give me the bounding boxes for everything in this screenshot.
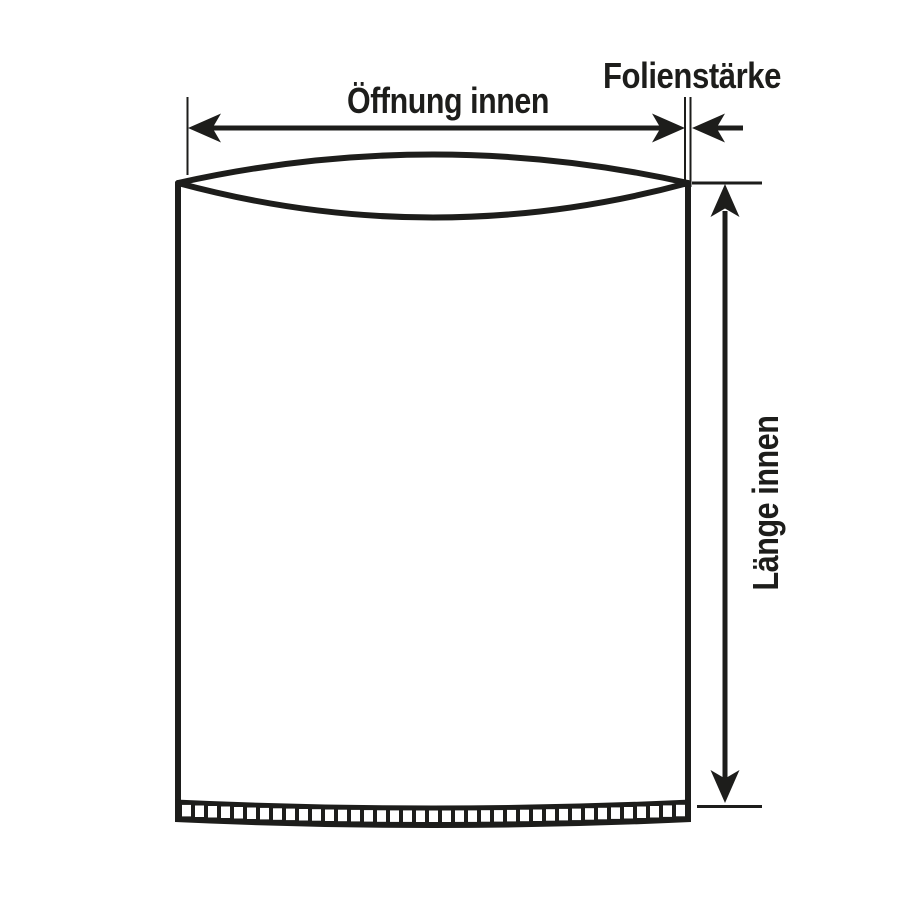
weld-seam-square xyxy=(676,805,685,817)
weld-seam-square xyxy=(338,810,347,822)
weld-seam-square xyxy=(234,807,243,819)
dimension-film-thickness: Folienstärke xyxy=(603,55,781,187)
weld-seam-square xyxy=(546,809,555,821)
weld-seam-square xyxy=(442,811,451,823)
weld-seam-square xyxy=(195,806,204,818)
weld-seam-square xyxy=(364,810,373,822)
weld-seam-square xyxy=(247,808,256,820)
weld-seam-square xyxy=(650,806,659,818)
weld-seam-square xyxy=(429,811,438,823)
weld-seam-square xyxy=(520,810,529,822)
bottom-weld-seam xyxy=(175,800,691,829)
weld-seam-square xyxy=(390,810,399,822)
weld-seam-square xyxy=(455,810,464,822)
weld-seam-square xyxy=(325,810,334,822)
diagram-canvas: Öffnung innen Folienstärke Länge innen xyxy=(0,0,900,900)
inner-length-label: Länge innen xyxy=(745,416,786,591)
bag-opening-upper-arc xyxy=(178,155,688,184)
weld-seam-square xyxy=(481,810,490,822)
weld-seam-square xyxy=(416,811,425,823)
opening-width-label: Öffnung innen xyxy=(347,80,549,121)
dimension-inner-length: Länge innen xyxy=(692,183,786,807)
bag-outline xyxy=(178,155,688,804)
weld-seam-square xyxy=(208,806,217,818)
weld-seam-square xyxy=(533,810,542,822)
weld-seam-square xyxy=(312,809,321,821)
weld-seam-square xyxy=(494,810,503,822)
weld-seam-square xyxy=(286,809,295,821)
weld-seam-square xyxy=(663,805,672,817)
film-thickness-label: Folienstärke xyxy=(603,55,781,96)
bag-opening-lower-arc xyxy=(178,183,688,218)
weld-seam-square xyxy=(351,810,360,822)
weld-seam-square xyxy=(403,810,412,822)
bag-dimension-diagram: Öffnung innen Folienstärke Länge innen xyxy=(0,0,900,900)
weld-seam-square xyxy=(598,808,607,820)
weld-seam-square xyxy=(624,807,633,819)
weld-seam-square xyxy=(585,808,594,820)
weld-seam-square xyxy=(182,805,191,817)
weld-seam-square xyxy=(299,809,308,821)
weld-seam-square xyxy=(221,807,230,819)
weld-seam-square xyxy=(507,810,516,822)
weld-seam-square xyxy=(260,808,269,820)
weld-seam-square xyxy=(377,810,386,822)
weld-seam-square xyxy=(572,809,581,821)
weld-seam-square xyxy=(559,809,568,821)
weld-seam-square xyxy=(273,808,282,820)
weld-seam-square xyxy=(611,807,620,819)
weld-seam-square xyxy=(468,810,477,822)
weld-seam-square xyxy=(637,807,646,819)
